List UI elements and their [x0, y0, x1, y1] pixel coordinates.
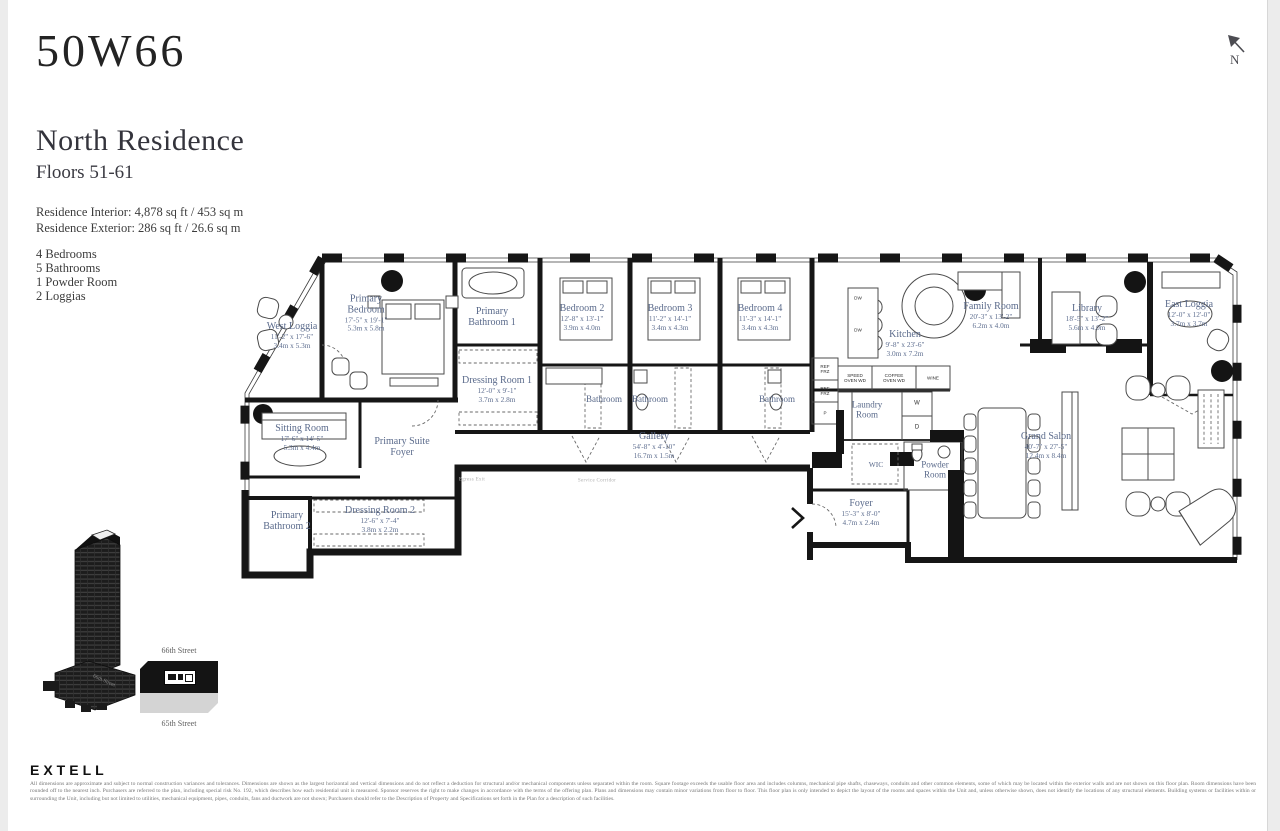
room-label-east-loggia: East Loggia 12'-0" x 12'-0" 3.7m x 3.7m	[1165, 300, 1213, 328]
annotation-service-corridor: Service Corridor	[578, 479, 616, 484]
key-plan-unit-room	[178, 674, 183, 680]
room-label-primary-bathroom-2: Primary Bathroom 2	[254, 511, 320, 533]
room-label-kitchen: Kitchen 9'-8" x 23'-6" 3.0m x 7.2m	[886, 330, 925, 358]
room-label-grand-salon: Grand Salon 40'-7" x 27'-5" 12.4m x 8.4m	[1021, 432, 1071, 460]
room-label-bathroom-a: Bathroom	[586, 395, 622, 405]
room-label-dressing-room-1: Dressing Room 1 12'-0" x 9'-1" 3.7m x 2.…	[462, 376, 532, 404]
key-plan-unit-room	[168, 674, 176, 680]
key-plan-notch-bottom	[208, 703, 218, 713]
brochure-page: 50W66 North Residence Floors 51-61 Resid…	[0, 0, 1280, 831]
room-label-family-room: Family Room 20'-3" x 13'-2" 6.2m x 4.0m	[963, 302, 1018, 330]
key-plan-unit-room	[185, 674, 193, 682]
room-label-primary-suite-foyer: Primary Suite Foyer	[371, 437, 433, 459]
fixture-ref-2: REF FRZ	[818, 386, 832, 396]
room-label-west-loggia: West Loggia 11'-2" x 17'-6" 3.4m x 5.3m	[267, 322, 318, 350]
key-plan	[140, 661, 218, 715]
fixture-washer: W	[910, 401, 924, 408]
room-label-gallery: Gallery 54'-8" x 4'-10" 16.7m x 1.5m	[633, 432, 676, 460]
entry-arrow-icon	[792, 508, 803, 528]
fixture-coffee-oven: COFFEE OVEN WD	[879, 373, 909, 383]
room-label-library: Library 18'-5" x 13'-2" 5.6m x 4.0m	[1066, 304, 1109, 332]
key-plan-unit-marker	[164, 670, 196, 685]
room-label-bedroom-4: Bedroom 4 11'-3" x 14'-1" 3.4m x 4.3m	[738, 304, 783, 332]
extell-logo: EXTELL	[30, 762, 108, 778]
fixture-dryer: D	[910, 425, 924, 432]
room-label-bedroom-2: Bedroom 2 12'-8" x 13'-1" 3.9m x 4.0m	[560, 304, 605, 332]
room-label-powder-room: Powder Room	[912, 460, 958, 479]
key-plan-building	[140, 661, 218, 693]
room-label-primary-bedroom: Primary Bedroom 17'-5" x 19'-1" 5.3m x 5…	[333, 294, 399, 333]
fixture-wine: WINE	[921, 375, 945, 380]
key-plan-lowrise	[140, 693, 218, 713]
room-label-laundry-room: Laundry Room	[842, 400, 892, 419]
room-label-bathroom-b: Bathroom	[632, 395, 668, 405]
room-label-wic: WIC	[869, 461, 884, 469]
key-plan-notch-top	[140, 661, 148, 669]
room-label-bedroom-3: Bedroom 3 11'-2" x 14'-1" 3.4m x 4.3m	[648, 304, 693, 332]
street-label-65th: 65th Street	[162, 719, 197, 728]
room-label-foyer: Foyer 15'-3" x 8'-0" 4.7m x 2.4m	[842, 499, 881, 527]
building-illustration	[43, 530, 135, 712]
fixture-dw-2: DW	[851, 327, 865, 332]
fixture-ref-1: REF FRZ	[818, 364, 832, 374]
fixture-dw-1: DW	[851, 295, 865, 300]
room-label-bathroom-c: Bathroom	[759, 395, 795, 405]
street-label-66th: 66th Street	[162, 646, 197, 655]
room-label-sitting-room: Sitting Room 17'-6" x 14'-5" 5.3m x 4.4m	[275, 424, 329, 452]
fixture-speed-oven: SPEED OVEN WD	[843, 373, 867, 383]
annotation-egress: Egress Exit	[459, 478, 485, 483]
room-label-primary-bathroom-1: Primary Bathroom 1	[461, 307, 523, 329]
room-label-dressing-room-2: Dressing Room 2 12'-6" x 7'-4" 3.8m x 2.…	[345, 506, 415, 534]
disclaimer-text: All dimensions are approximate and subje…	[30, 781, 1256, 803]
fixture-pantry: P	[818, 410, 832, 415]
